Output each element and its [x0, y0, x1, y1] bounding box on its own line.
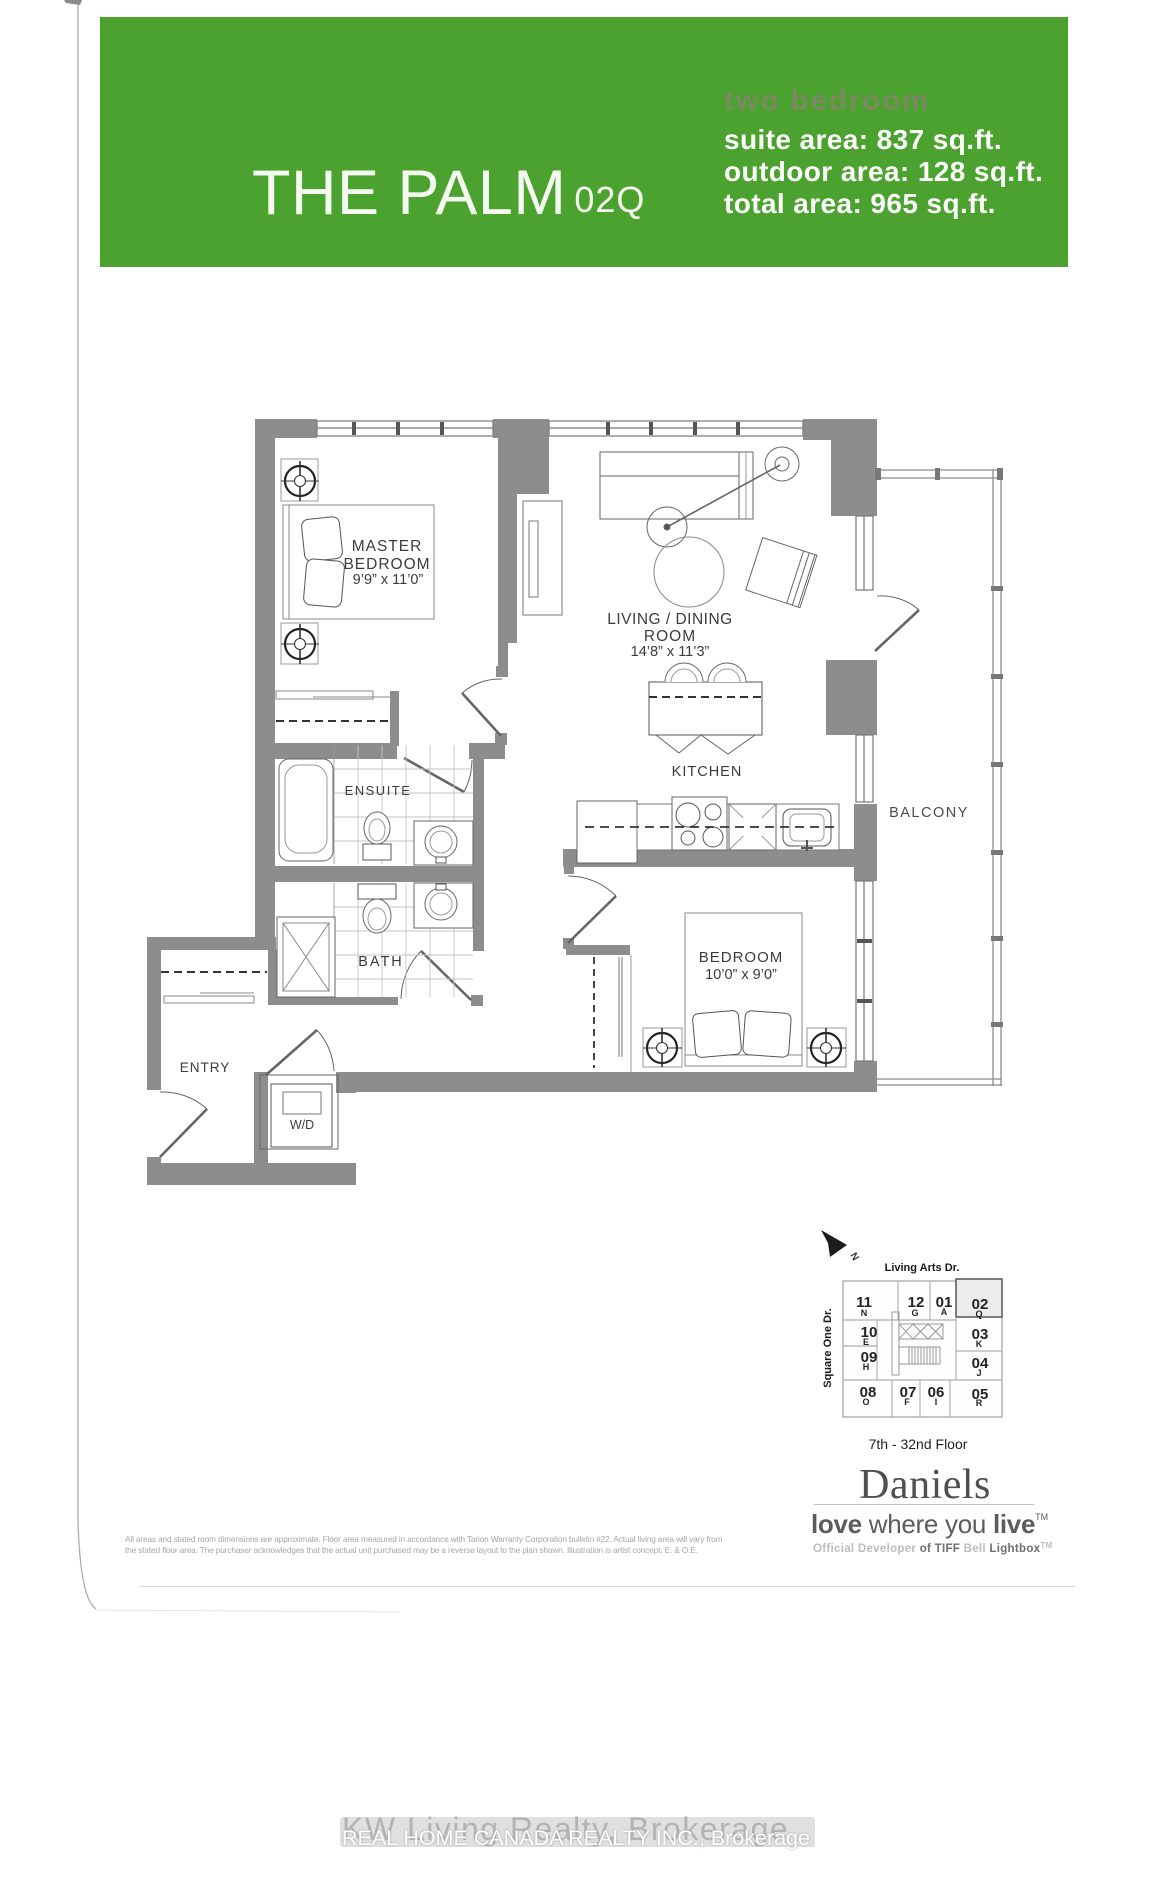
svg-text:LIVING / DINING: LIVING / DINING — [607, 611, 733, 628]
svg-text:KITCHEN: KITCHEN — [672, 764, 743, 780]
svg-text:H: H — [863, 1362, 870, 1372]
svg-text:A: A — [941, 1307, 948, 1317]
svg-text:K: K — [976, 1339, 983, 1349]
svg-text:BATH: BATH — [358, 954, 404, 970]
svg-text:J: J — [976, 1368, 981, 1378]
svg-text:Living Arts Dr.: Living Arts Dr. — [885, 1262, 960, 1274]
svg-text:BEDROOM: BEDROOM — [699, 949, 784, 966]
svg-text:7th - 32nd Floor: 7th - 32nd Floor — [869, 1436, 968, 1452]
svg-text:N: N — [847, 1251, 860, 1263]
svg-text:F: F — [904, 1397, 910, 1407]
svg-text:9’9” x 11’0”: 9’9” x 11’0” — [353, 572, 424, 588]
svg-text:R: R — [976, 1398, 983, 1408]
svg-text:BEDROOM: BEDROOM — [343, 556, 430, 573]
svg-text:ENSUITE: ENSUITE — [345, 783, 412, 798]
svg-text:I: I — [935, 1397, 938, 1407]
svg-text:N: N — [861, 1308, 868, 1318]
svg-text:Square One Dr.: Square One Dr. — [822, 1308, 834, 1387]
svg-text:G: G — [911, 1308, 918, 1318]
svg-text:W/D: W/D — [290, 1118, 314, 1132]
svg-text:ENTRY: ENTRY — [180, 1060, 231, 1075]
svg-text:BALCONY: BALCONY — [889, 805, 969, 821]
svg-text:ROOM: ROOM — [644, 628, 696, 645]
svg-text:10’0” x 9’0”: 10’0” x 9’0” — [705, 967, 777, 983]
svg-text:14’8” x 11’3”: 14’8” x 11’3” — [631, 644, 710, 660]
svg-text:E: E — [863, 1337, 869, 1347]
svg-text:Q: Q — [975, 1309, 982, 1319]
svg-text:MASTER: MASTER — [352, 538, 423, 555]
svg-text:O: O — [862, 1397, 869, 1407]
